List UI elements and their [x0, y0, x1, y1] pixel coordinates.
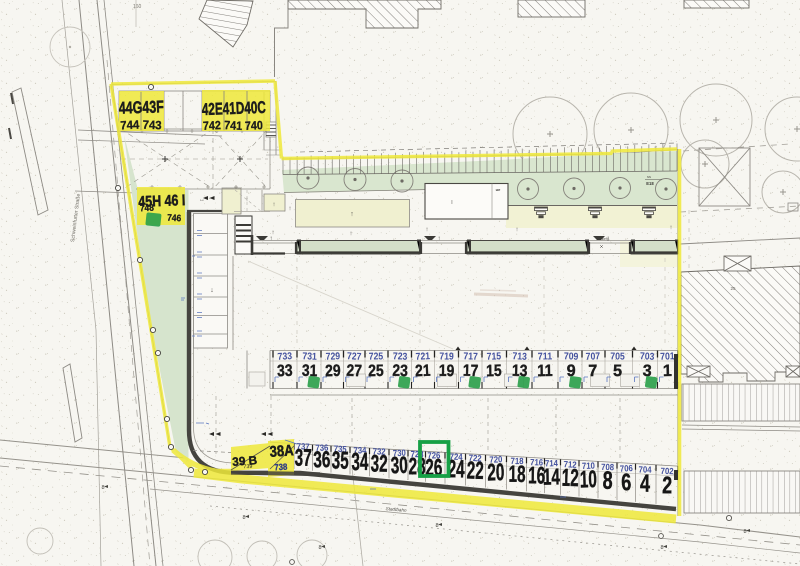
svg-text:7: 7 [588, 362, 597, 380]
svg-text:742: 742 [203, 118, 222, 133]
svg-text:36: 36 [313, 446, 331, 472]
svg-text:↑: ↑ [349, 230, 352, 237]
svg-text:32: 32 [370, 450, 388, 477]
svg-text:711: 711 [538, 351, 553, 362]
svg-text:I: I [451, 200, 452, 206]
svg-text:↑: ↑ [271, 229, 274, 236]
svg-text:719: 719 [439, 351, 454, 362]
svg-text:25: 25 [368, 362, 384, 380]
svg-text:↑: ↑ [270, 236, 273, 242]
svg-text:705: 705 [610, 351, 625, 362]
svg-text:8: 8 [660, 545, 663, 551]
svg-text:ss: ss [647, 174, 651, 179]
svg-text:37: 37 [294, 445, 312, 472]
svg-text:19: 19 [439, 362, 455, 380]
svg-text:744: 744 [120, 118, 140, 133]
svg-text:18: 18 [508, 461, 525, 487]
svg-text:2: 2 [662, 472, 673, 499]
svg-text:↑: ↑ [350, 211, 354, 218]
svg-text:↑: ↑ [607, 236, 610, 242]
svg-text:739: 739 [243, 464, 252, 470]
svg-text:↓: ↓ [210, 287, 214, 294]
svg-text:↑: ↑ [515, 226, 518, 233]
svg-text:1: 1 [663, 362, 672, 380]
svg-text:↑: ↑ [288, 205, 291, 212]
svg-text:746: 746 [167, 213, 182, 225]
svg-text:↑: ↑ [438, 236, 441, 242]
svg-text:748: 748 [140, 203, 155, 215]
svg-text:5: 5 [613, 362, 622, 380]
svg-text:8: 8 [602, 467, 613, 495]
svg-text:8: 8 [743, 529, 746, 535]
svg-text:8: 8 [611, 501, 614, 507]
svg-text:E18: E18 [646, 181, 654, 186]
svg-text:738: 738 [274, 462, 288, 473]
svg-text:ue: ue [496, 187, 501, 192]
svg-text:8: 8 [242, 515, 245, 521]
svg-text:33: 33 [277, 362, 293, 381]
svg-text:4: 4 [640, 471, 651, 498]
svg-text:38A: 38A [269, 442, 294, 461]
svg-text:30: 30 [390, 452, 408, 479]
svg-text:29: 29 [325, 362, 341, 380]
svg-text:740: 740 [245, 118, 264, 133]
svg-text:725: 725 [369, 351, 384, 362]
svg-text:11: 11 [537, 362, 553, 380]
svg-text:14: 14 [543, 463, 560, 489]
svg-text:741: 741 [224, 118, 243, 133]
svg-text:8: 8 [435, 523, 438, 529]
svg-text:743: 743 [142, 118, 162, 133]
svg-text:22: 22 [466, 457, 484, 485]
svg-text:27: 27 [346, 362, 362, 381]
svg-text:42E41D40C: 42E41D40C [201, 98, 266, 119]
svg-text:34: 34 [351, 448, 368, 476]
svg-text:25: 25 [730, 286, 736, 291]
svg-text:21: 21 [415, 362, 431, 381]
svg-text:↑: ↑ [425, 226, 428, 233]
svg-text:↑: ↑ [272, 201, 275, 208]
svg-text:20: 20 [487, 459, 505, 486]
svg-text:↑: ↑ [669, 224, 672, 231]
svg-text:35: 35 [331, 447, 349, 475]
svg-text:6: 6 [621, 469, 632, 496]
svg-text:12: 12 [561, 465, 579, 493]
svg-text:8: 8 [101, 485, 104, 491]
svg-text:15: 15 [486, 362, 502, 380]
svg-text:8: 8 [318, 545, 321, 551]
svg-text:44G43F: 44G43F [118, 97, 164, 118]
svg-text:10: 10 [580, 466, 598, 493]
svg-text:160: 160 [133, 4, 142, 10]
